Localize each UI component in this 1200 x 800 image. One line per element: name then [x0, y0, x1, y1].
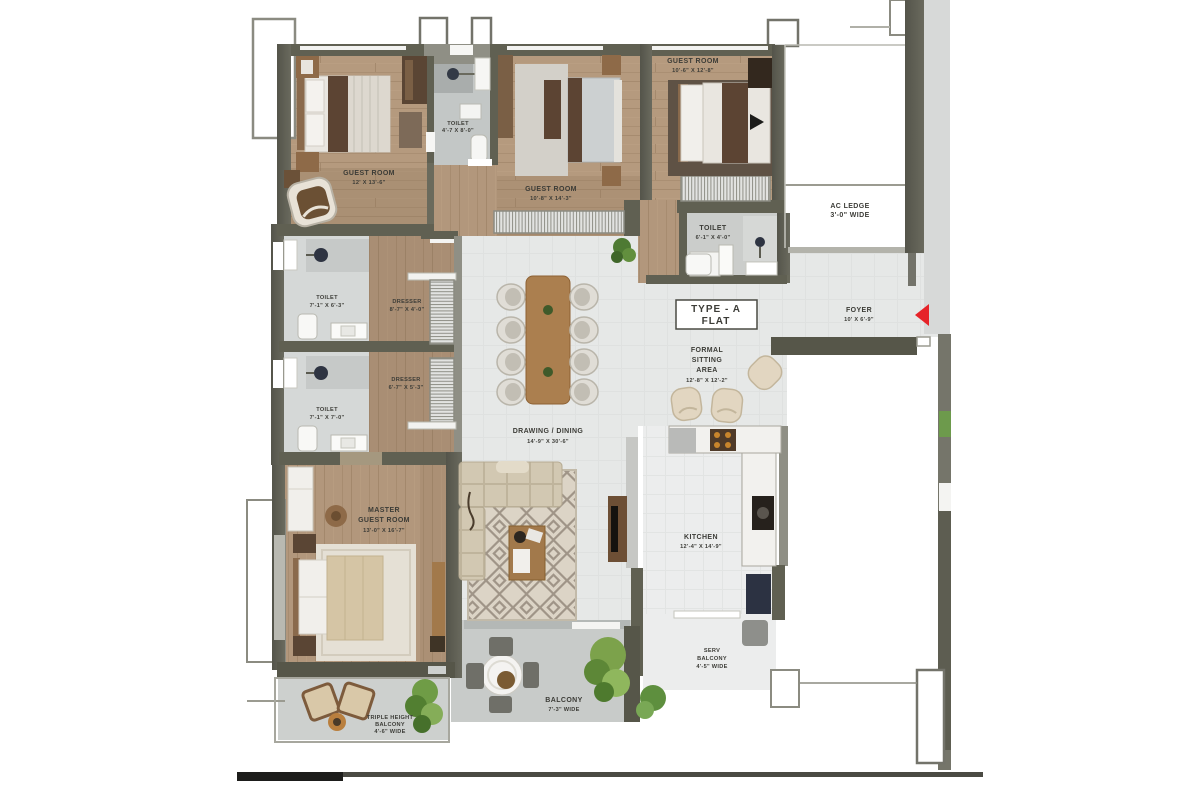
svg-text:DRESSER: DRESSER	[391, 377, 420, 383]
svg-text:10'-8" X 14'-3": 10'-8" X 14'-3"	[530, 196, 572, 202]
svg-text:TOILET: TOILET	[316, 407, 338, 413]
svg-text:12'-8" X 12'-2": 12'-8" X 12'-2"	[686, 378, 728, 384]
svg-text:AREA: AREA	[696, 367, 717, 374]
svg-text:7'-1" X 7'-0": 7'-1" X 7'-0"	[310, 415, 345, 421]
svg-text:12'-4" X 14'-9": 12'-4" X 14'-9"	[680, 544, 722, 550]
svg-text:12' X 13'-6": 12' X 13'-6"	[352, 180, 385, 186]
svg-text:13'-0" X 16'-7": 13'-0" X 16'-7"	[363, 528, 405, 534]
svg-text:14'-9" X 30'-6": 14'-9" X 30'-6"	[527, 439, 569, 445]
svg-text:DRAWING / DINING: DRAWING / DINING	[513, 428, 584, 435]
svg-text:3'-0" WIDE: 3'-0" WIDE	[830, 212, 869, 219]
svg-text:GUEST ROOM: GUEST ROOM	[343, 170, 395, 177]
svg-text:8'-7" X 4'-0": 8'-7" X 4'-0"	[390, 307, 425, 313]
svg-text:TOILET: TOILET	[316, 295, 338, 301]
svg-text:10' X 6'-9": 10' X 6'-9"	[844, 317, 874, 323]
svg-text:KITCHEN: KITCHEN	[684, 534, 718, 541]
svg-text:4'-6" WIDE: 4'-6" WIDE	[374, 729, 405, 735]
svg-text:GUEST ROOM: GUEST ROOM	[525, 186, 577, 193]
svg-text:FLAT: FLAT	[702, 316, 731, 327]
svg-text:TYPE - A: TYPE - A	[691, 304, 741, 315]
svg-text:TOILET: TOILET	[447, 121, 469, 127]
svg-text:6'-1" X 4'-0": 6'-1" X 4'-0"	[696, 235, 731, 241]
svg-text:SERV: SERV	[704, 648, 720, 654]
svg-text:DRESSER: DRESSER	[392, 299, 421, 305]
svg-text:TOILET: TOILET	[699, 225, 726, 232]
svg-text:BALCONY: BALCONY	[545, 697, 582, 704]
svg-text:MASTER: MASTER	[368, 507, 400, 514]
svg-text:FORMAL: FORMAL	[691, 347, 724, 354]
svg-text:FOYER: FOYER	[846, 307, 872, 314]
svg-text:7'-3" WIDE: 7'-3" WIDE	[548, 707, 579, 713]
svg-text:GUEST ROOM: GUEST ROOM	[358, 517, 410, 524]
svg-text:SITTING: SITTING	[692, 357, 723, 364]
svg-text:7'-1" X 6'-3": 7'-1" X 6'-3"	[310, 303, 345, 309]
svg-text:BALCONY: BALCONY	[375, 722, 405, 728]
svg-text:BALCONY: BALCONY	[697, 656, 727, 662]
svg-text:AC LEDGE: AC LEDGE	[830, 203, 869, 210]
svg-text:GUEST ROOM: GUEST ROOM	[667, 58, 719, 65]
svg-text:TRIPLE HEIGHT: TRIPLE HEIGHT	[367, 715, 414, 721]
svg-text:4'-5" WIDE: 4'-5" WIDE	[696, 664, 727, 670]
svg-text:10'-6" X 12'-8": 10'-6" X 12'-8"	[672, 68, 714, 74]
svg-text:4'-7 X 8'-0": 4'-7 X 8'-0"	[442, 128, 474, 134]
svg-text:6'-7" X 5'-3": 6'-7" X 5'-3"	[389, 385, 424, 391]
